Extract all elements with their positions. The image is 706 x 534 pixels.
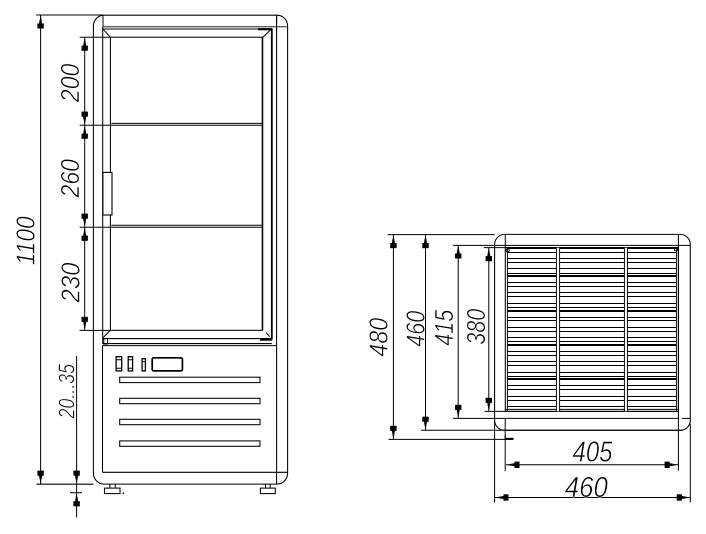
svg-text:200: 200 xyxy=(55,63,85,103)
svg-text:260: 260 xyxy=(55,159,85,199)
svg-text:460: 460 xyxy=(400,310,430,346)
svg-text:20...35: 20...35 xyxy=(54,364,80,419)
svg-text:1100: 1100 xyxy=(10,216,40,265)
svg-text:230: 230 xyxy=(55,262,85,303)
svg-text:380: 380 xyxy=(461,308,491,344)
svg-text:460: 460 xyxy=(565,472,608,504)
svg-text:405: 405 xyxy=(573,437,614,469)
svg-text:480: 480 xyxy=(364,317,394,356)
svg-text:415: 415 xyxy=(429,309,459,345)
